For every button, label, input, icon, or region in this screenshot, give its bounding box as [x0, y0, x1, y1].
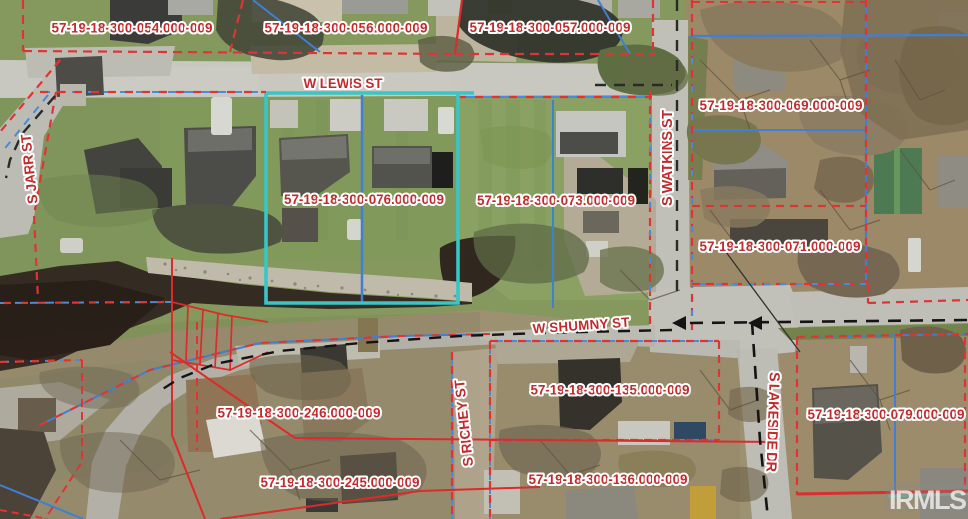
svg-text:57-19-18-300-076.000-009: 57-19-18-300-076.000-009 [284, 192, 444, 207]
svg-text:57-19-18-300-073.000-009: 57-19-18-300-073.000-009 [477, 193, 635, 208]
svg-text:57-19-18-300-245.000-009: 57-19-18-300-245.000-009 [261, 475, 420, 490]
svg-text:57-19-18-300-136.000-009: 57-19-18-300-136.000-009 [529, 472, 688, 487]
svg-text:57-19-18-300-056.000-009: 57-19-18-300-056.000-009 [265, 21, 428, 36]
svg-text:W LEWIS ST: W LEWIS ST [304, 76, 384, 91]
svg-text:57-19-18-300-054.000-009: 57-19-18-300-054.000-009 [52, 21, 213, 36]
svg-text:57-19-18-300-071.000-009: 57-19-18-300-071.000-009 [700, 239, 861, 254]
svg-text:57-19-18-300-246.000-009: 57-19-18-300-246.000-009 [218, 406, 381, 421]
svg-text:57-19-18-300-069.000-009: 57-19-18-300-069.000-009 [700, 98, 863, 113]
svg-text:57-19-18-300-079.000-009: 57-19-18-300-079.000-009 [808, 407, 965, 422]
svg-text:IRMLS: IRMLS [889, 485, 967, 515]
svg-text:S WATKINS ST: S WATKINS ST [660, 110, 676, 206]
svg-text:57-19-18-300-057.000-009: 57-19-18-300-057.000-009 [470, 20, 631, 35]
svg-text:57-19-18-300-135.000-009: 57-19-18-300-135.000-009 [531, 383, 690, 398]
